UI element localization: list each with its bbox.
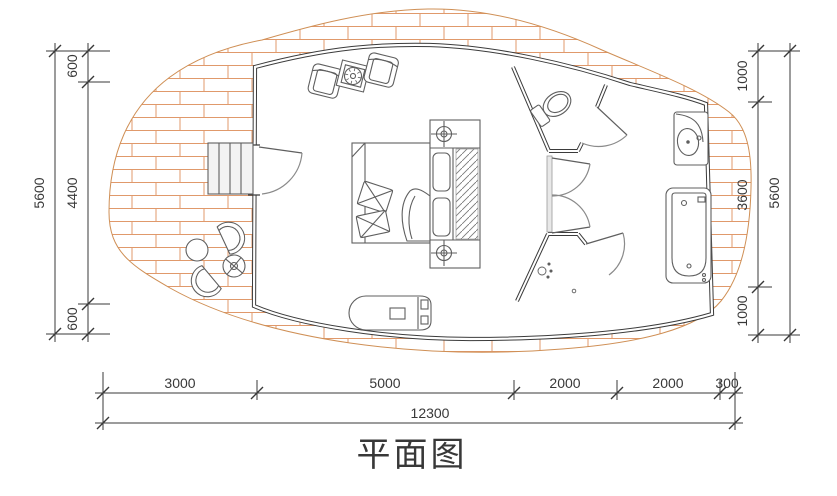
dim-bottom-seg1: 3000	[164, 375, 195, 391]
drawing-title: 平面图	[357, 436, 468, 474]
dim-right-seg1: 1000	[734, 60, 750, 91]
dim-left-seg3: 600	[64, 307, 80, 331]
dim-bottom-seg2: 5000	[369, 375, 400, 391]
floor-plan-drawing: 5600 600 4400 600 1000 3600 1000 5600 30…	[0, 0, 837, 496]
dim-left-seg1: 600	[64, 54, 80, 78]
double-bed	[352, 143, 430, 243]
blanket	[402, 189, 430, 241]
dim-right-seg3: 1000	[734, 295, 750, 326]
dim-left-seg2: 4400	[64, 177, 80, 208]
dimensions-left: 5600 600 4400 600	[31, 43, 110, 342]
dim-bottom-seg3: 2000	[549, 375, 580, 391]
entry-steps	[208, 143, 253, 194]
washbasin	[674, 112, 708, 165]
floor-plan-page: 5600 600 4400 600 1000 3600 1000 5600 30…	[0, 0, 837, 496]
dimensions-bottom: 3000 5000 2000 2000 300 12300	[95, 372, 743, 430]
wardrobe-hatch	[456, 149, 478, 239]
dimensions-right: 1000 3600 1000 5600	[734, 43, 800, 343]
bathtub	[666, 188, 711, 283]
dim-bottom-seg5: 300	[715, 375, 739, 391]
lounge-bench	[349, 296, 431, 330]
dim-left-total: 5600	[31, 177, 47, 208]
outdoor-table	[186, 239, 208, 261]
double-door-frame	[547, 156, 552, 232]
dim-bottom-total: 12300	[411, 405, 450, 421]
headboard-unit	[430, 120, 480, 268]
dim-right-seg2: 3600	[734, 179, 750, 210]
dim-bottom-seg4: 2000	[652, 375, 683, 391]
armchair-right	[363, 52, 399, 88]
dim-right-total: 5600	[766, 177, 782, 208]
